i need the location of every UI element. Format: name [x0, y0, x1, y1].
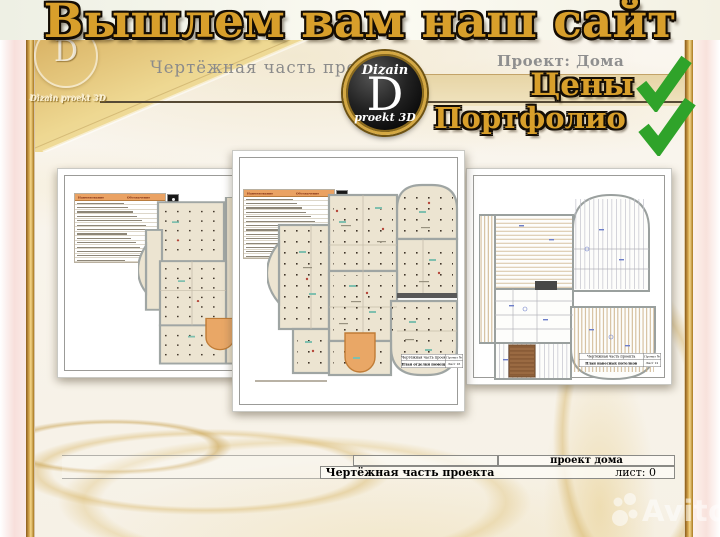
bottom-title-block: проект дома Чертёжная часть проекта лист… [320, 455, 675, 479]
stamp-title: Чертёжная часть проекта [402, 355, 446, 361]
sheet-stamp: Чертёжная часть проекта Проект № План от… [401, 354, 463, 368]
title-block-extension [62, 455, 353, 479]
stamp-plan-name: План отделки помещений [402, 361, 446, 368]
title-block-empty-cell [353, 455, 498, 466]
ad-image: D Dizain proekt 3D Чертёжная часть проек… [0, 0, 720, 537]
title-block-sheet-number: лист: 0 [615, 467, 656, 479]
title-block-row2: Чертёжная часть проекта лист: 0 [320, 466, 675, 479]
stamp-project: Проект № [644, 354, 661, 360]
floor-plan-middle [267, 181, 459, 381]
stamp-sheet-no: Лист 16 [446, 361, 463, 368]
avito-logo-icon [610, 492, 640, 530]
stamp-sheet-no: Лист 12 [644, 360, 661, 367]
avito-label: Avito [642, 494, 720, 528]
sheet-footnote [255, 380, 327, 382]
prices-link[interactable]: Цены [518, 67, 646, 103]
stamp-title: Чертёжная часть проекта [580, 354, 644, 360]
sheet-stamp: Чертёжная часть проекта Проект № План на… [579, 353, 661, 367]
stamp-project: Проект № [446, 355, 463, 361]
title-block-title: Чертёжная часть проекта [321, 467, 499, 479]
title-block-project-cell: проект дома [498, 455, 675, 466]
stamp-plan-name: План навесных потолков [580, 360, 644, 367]
left-pink-border [0, 36, 26, 537]
header-subtitle: Чертёжная часть проекта [150, 58, 370, 77]
avito-watermark: Avito [610, 492, 720, 530]
legend-header-left: Наименование [78, 196, 104, 200]
banner-title: Вышлем вам наш сайт [0, 0, 720, 48]
portfolio-link[interactable]: Портфолио [413, 101, 647, 135]
corner-logo-caption: Dizain proekt 3D [24, 93, 112, 103]
drawing-sheet-right: Чертёжная часть проекта Проект № План на… [466, 168, 672, 385]
check-icon-portfolio [634, 96, 698, 156]
drawing-sheet-middle: Наименование Обозначение [232, 150, 465, 412]
left-gold-stripe [26, 36, 35, 537]
